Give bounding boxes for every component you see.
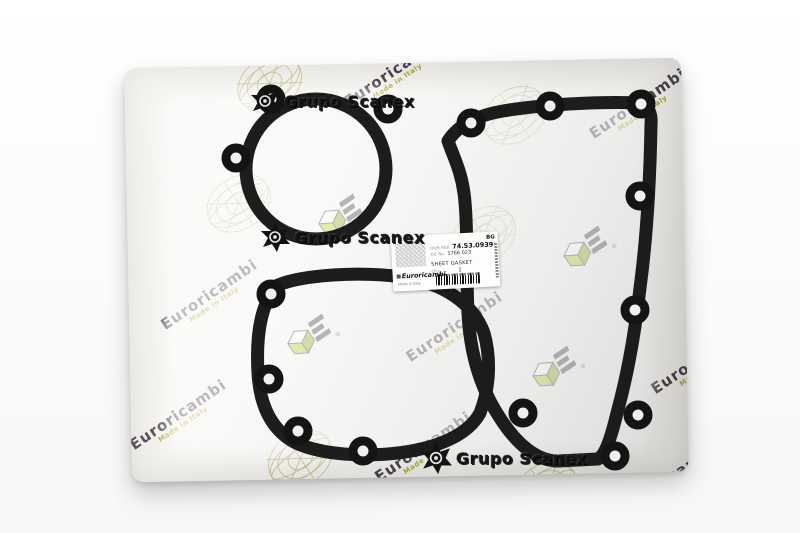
- gasket-bolt-hole: [378, 99, 398, 119]
- gasket-bolt-hole: [605, 446, 625, 466]
- product-photo: EuroricambiMade in Italy®EuroricambiMade…: [0, 0, 800, 533]
- label-corner-code: BG: [486, 234, 495, 240]
- euroricambi-mark-icon: [397, 274, 401, 278]
- gasket-bolt-hole: [628, 405, 648, 425]
- gasket-bolt-hole: [630, 186, 650, 206]
- gasket-bolt-hole: [625, 300, 645, 320]
- label-footer: Made in Italy: [398, 281, 421, 286]
- label-oe-caption: OE No.: [430, 251, 445, 257]
- gasket-bolt-hole: [261, 89, 281, 109]
- label-thumbnail-sketch: [395, 242, 426, 268]
- gasket-bolt-hole: [353, 441, 373, 461]
- gasket-bolt-hole: [288, 421, 308, 441]
- gasket-bolt-hole: [540, 96, 560, 116]
- gasket-bolt-hole: [226, 148, 246, 168]
- gasket-bolt-hole: [461, 113, 481, 133]
- label-side-barcode: [494, 243, 499, 277]
- part-number: 74.53.0939: [452, 240, 493, 250]
- part-label: OUR REF.74.53.0939 OE No.1766 023 SHEET …: [391, 231, 501, 292]
- gasket-bolt-hole: [261, 284, 281, 304]
- gasket-bolt-hole: [631, 94, 651, 114]
- gasket-bolt-hole: [513, 403, 533, 423]
- gasket-circle-opening: [246, 99, 386, 239]
- oe-number: 1766 023: [447, 250, 471, 257]
- gasket-bolt-hole: [259, 369, 279, 389]
